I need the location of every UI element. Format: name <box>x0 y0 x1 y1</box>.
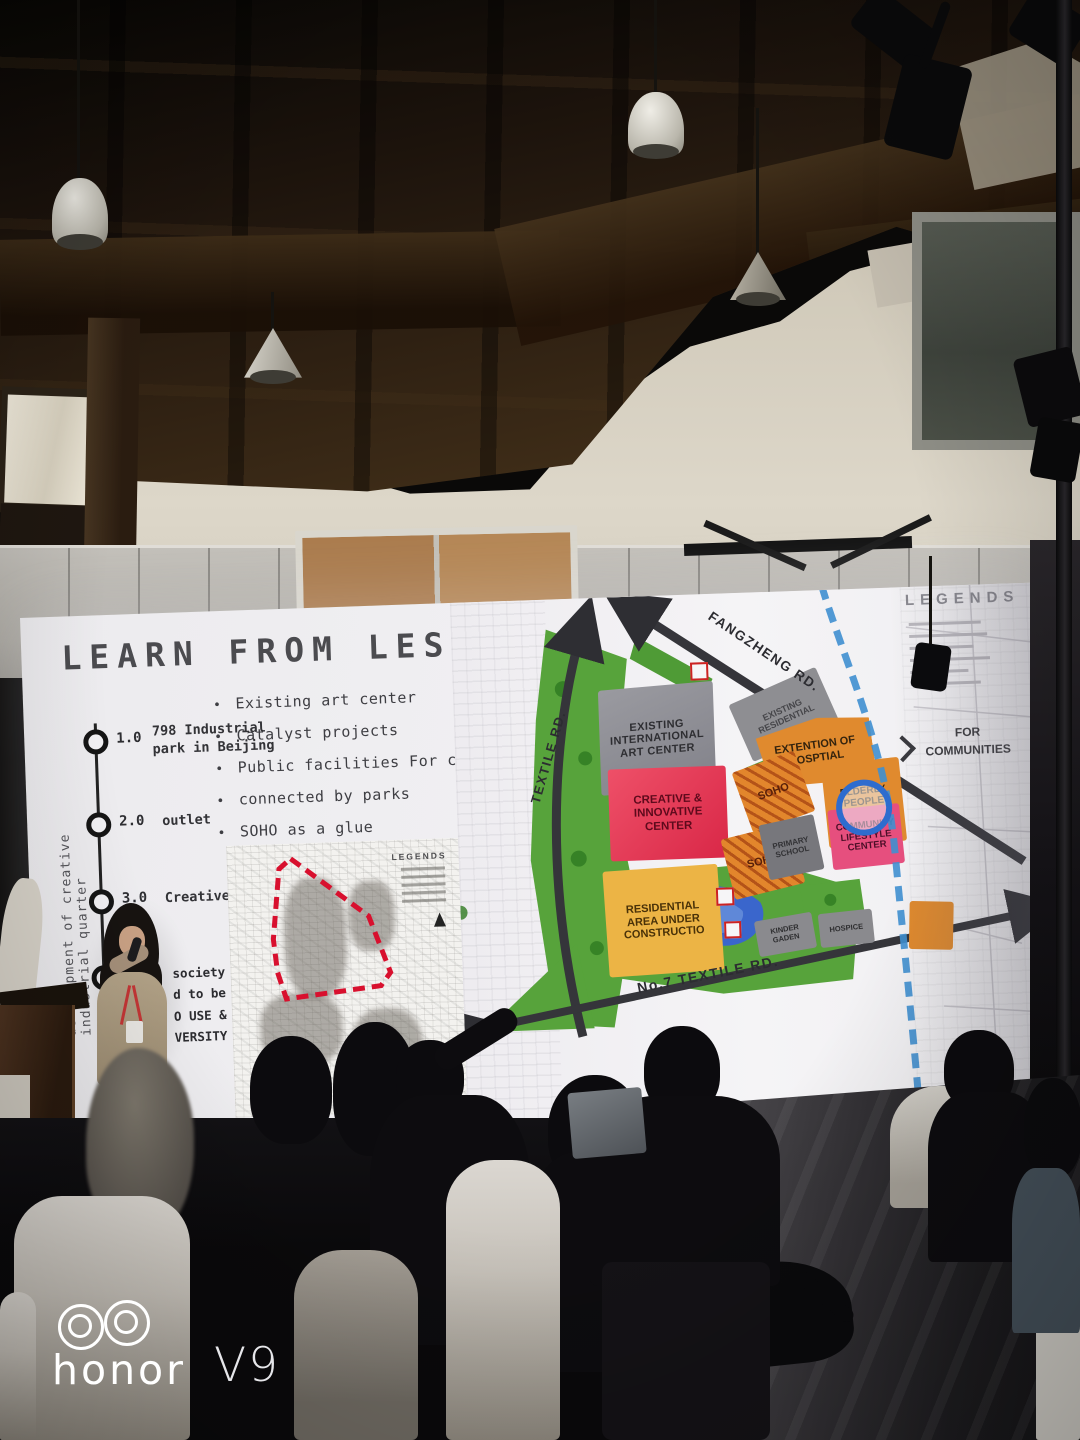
lamp-cord <box>271 292 274 332</box>
laptop <box>567 1087 646 1159</box>
lamp-cord <box>77 0 80 182</box>
lamp-cord <box>654 0 657 96</box>
lamp-opening <box>57 234 103 250</box>
watermark-brand: honor <box>52 1346 186 1394</box>
attendee-head <box>250 1036 332 1144</box>
watermark-model: V9 <box>214 1338 280 1393</box>
lamp-opening <box>633 144 679 159</box>
milestone-number: 2.0 <box>119 813 145 830</box>
chair-cover <box>446 1160 560 1440</box>
milestone-number: 1.0 <box>116 730 142 747</box>
timeline-node <box>86 812 112 838</box>
milestone-label: outlet <box>162 810 211 830</box>
attendee-chair-dark <box>602 1262 770 1440</box>
lamp-opening <box>736 292 780 306</box>
lamp-opening <box>250 370 296 384</box>
left-window-pane <box>4 395 94 506</box>
right-dark-wall <box>1030 540 1080 1100</box>
rig-pole <box>1056 0 1072 1085</box>
inset-legend-title: LEGENDS <box>391 850 446 862</box>
stage-light-icon <box>1029 416 1080 483</box>
hanging-speaker-icon <box>910 642 952 693</box>
chair-cover <box>294 1250 418 1440</box>
honor-logo-icon <box>58 1304 104 1350</box>
lamp-cord <box>756 108 759 256</box>
camera-watermark: honor V9 <box>52 1296 292 1404</box>
wood-column <box>84 318 140 569</box>
badge <box>126 1021 143 1043</box>
attendee-head <box>1024 1078 1080 1178</box>
timeline-node <box>83 729 109 755</box>
chair-cover <box>0 1292 36 1440</box>
speaker-cord <box>929 556 932 650</box>
attendee-torso-blue-shirt <box>1012 1168 1080 1333</box>
honor-logo-icon <box>104 1300 150 1346</box>
conference-photo: LEARN FROM LESSONS development of creati… <box>0 0 1080 1440</box>
